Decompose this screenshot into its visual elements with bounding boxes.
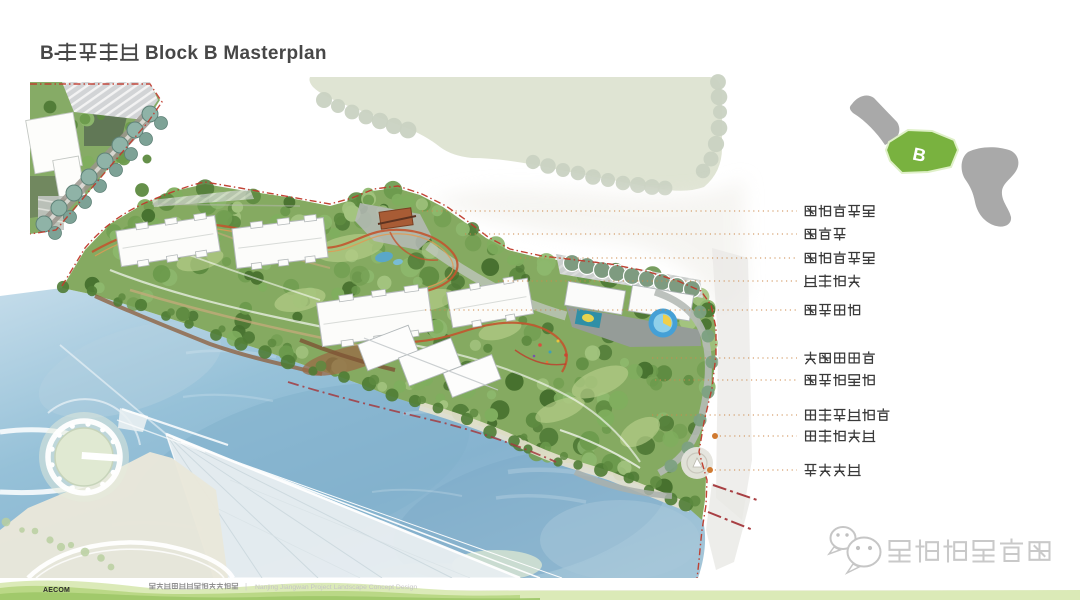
svg-text:Nanjing Jiangwan Project Lands: Nanjing Jiangwan Project Landscape Conce… — [255, 584, 417, 591]
svg-text:B-: B- — [40, 43, 60, 64]
svg-text:Block B Masterplan: Block B Masterplan — [145, 43, 327, 64]
svg-text:AECOM: AECOM — [43, 587, 70, 594]
svg-text:|: | — [245, 582, 247, 591]
